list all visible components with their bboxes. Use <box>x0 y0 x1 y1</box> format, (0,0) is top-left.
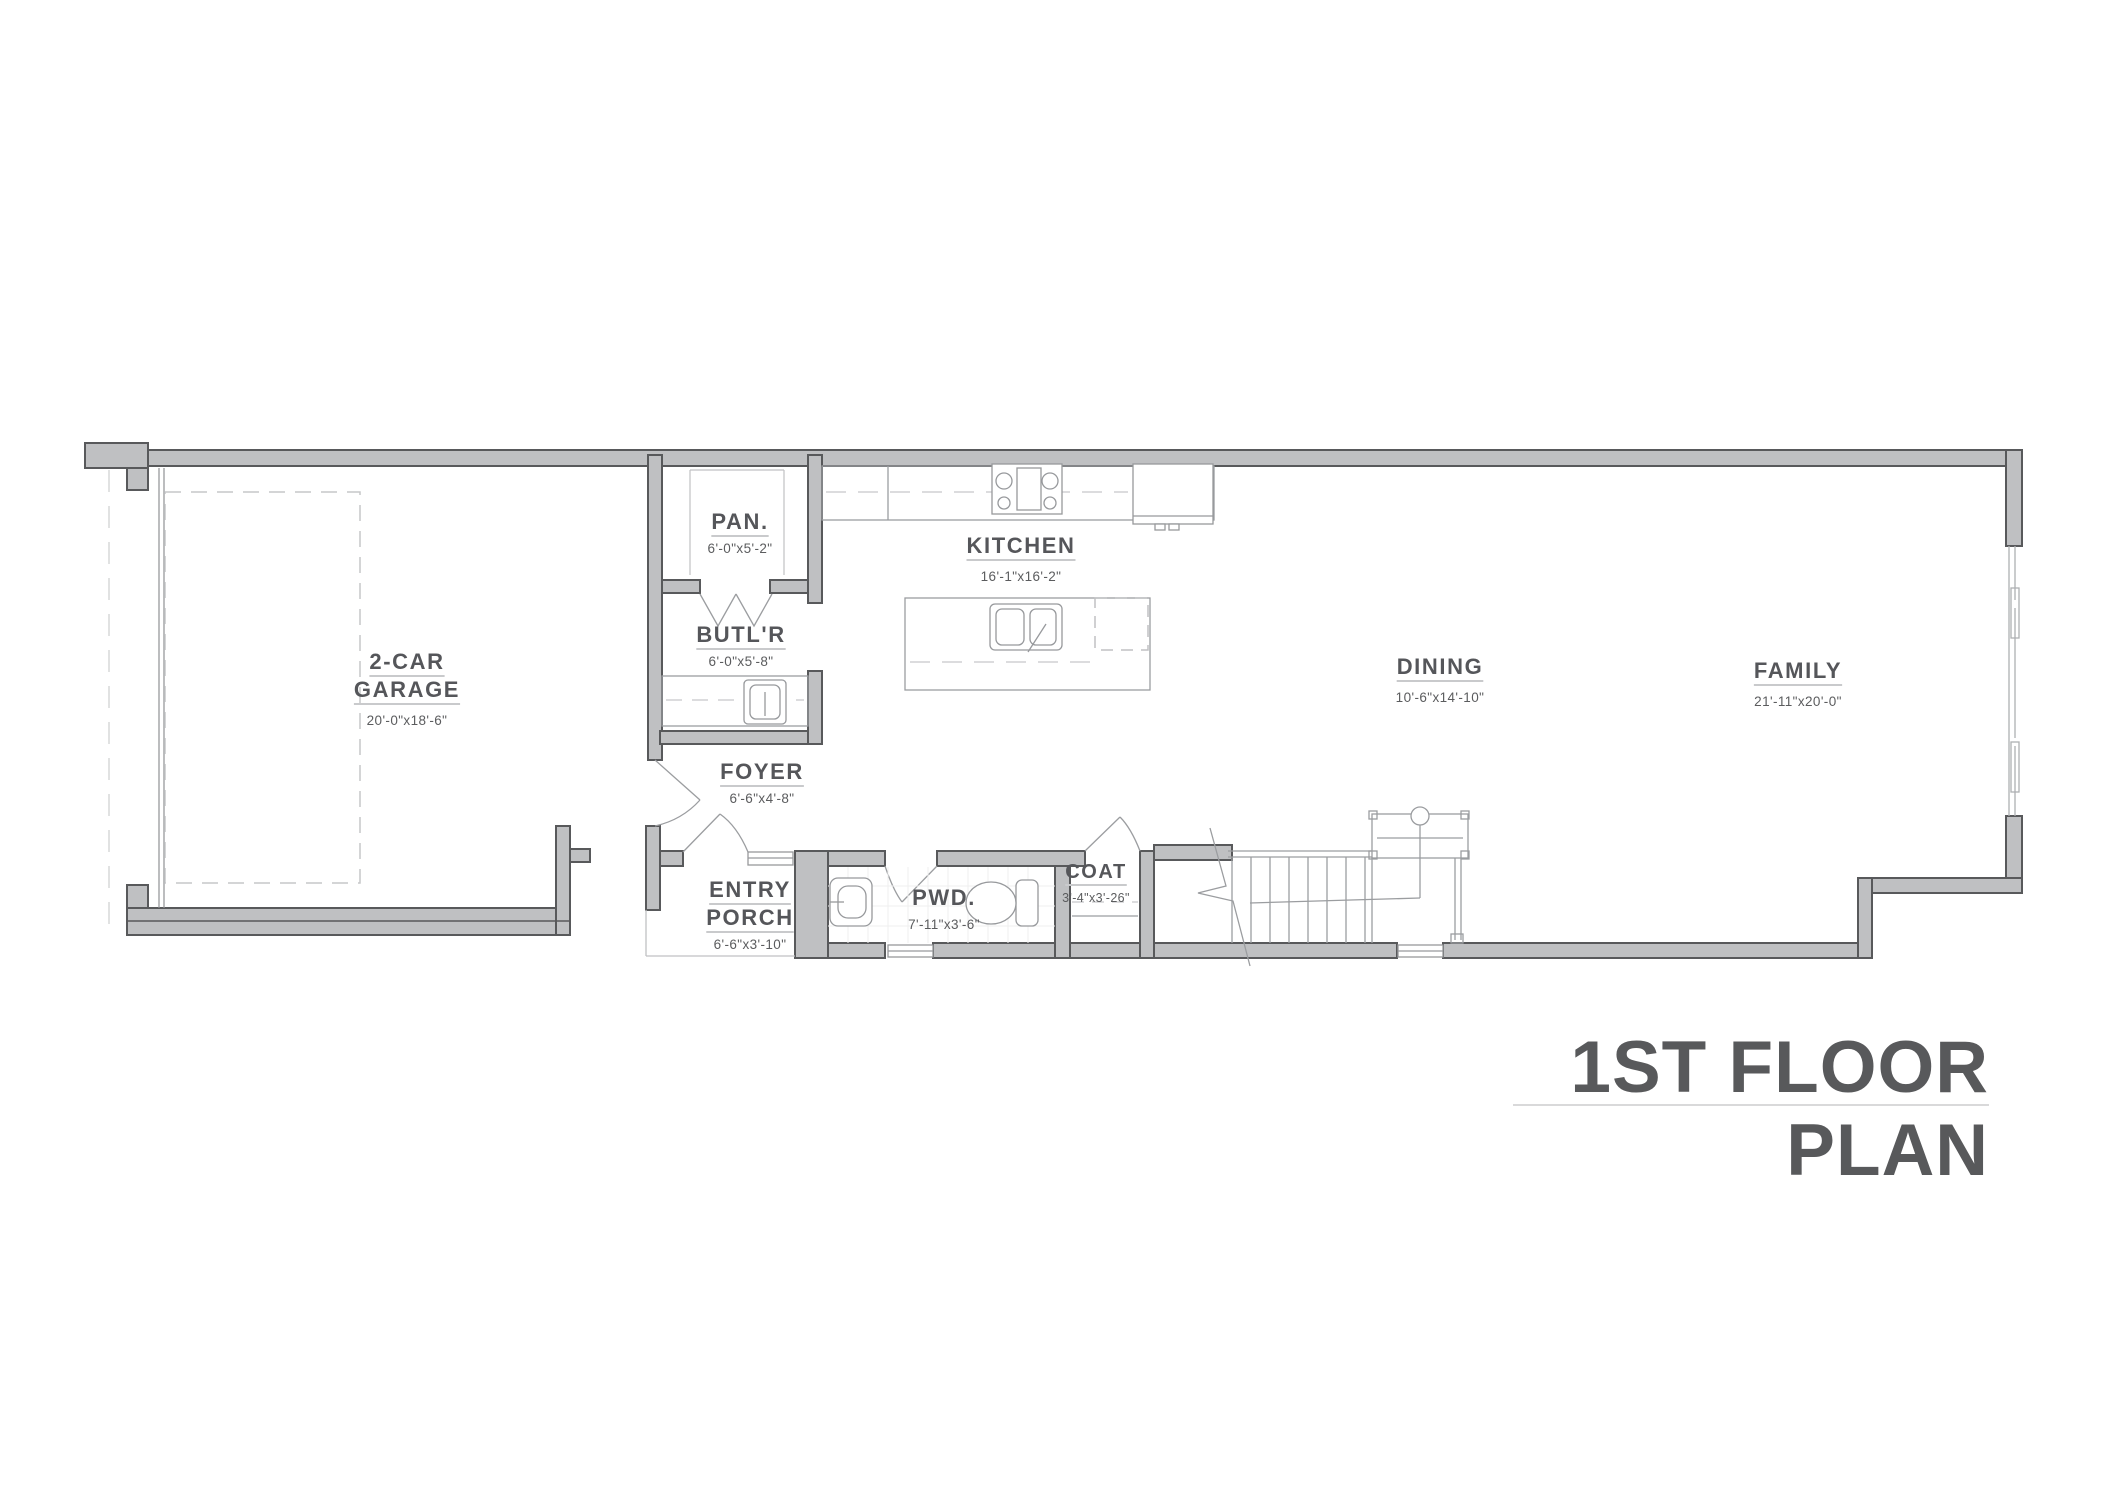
room-label-entry-porch: ENTRY PORCH 6'-6"x3'-10" <box>690 876 810 952</box>
room-dimensions: 16'-1"x16'-2" <box>911 569 1131 584</box>
plan-title-underline <box>1513 1104 1989 1106</box>
floor-plan-page: 2-CAR GARAGE 20'-0"x18'-6" PAN. 6'-0"x5'… <box>0 0 2109 1490</box>
room-name: COAT <box>1036 860 1156 886</box>
room-dimensions: 6'-6"x3'-10" <box>690 937 810 952</box>
room-label-garage: 2-CAR GARAGE 20'-0"x18'-6" <box>332 648 482 728</box>
room-name: KITCHEN <box>911 532 1131 560</box>
room-name: ENTRY PORCH <box>690 876 810 932</box>
room-label-powder: PWD. 7'-11"x3'-6" <box>864 884 1024 932</box>
stair-railing <box>1369 807 1469 943</box>
room-dimensions: 20'-0"x18'-6" <box>332 713 482 728</box>
garage-parking-outline <box>165 492 360 883</box>
room-name: DINING <box>1330 653 1550 681</box>
room-name: PWD. <box>864 884 1024 912</box>
room-label-foyer: FOYER 6'-6"x4'-8" <box>682 758 842 806</box>
room-dimensions: 3'-4"x3'-26" <box>1036 891 1156 905</box>
room-dimensions: 21'-11"x20'-0" <box>1688 694 1908 709</box>
stairs <box>1228 851 1420 943</box>
butler-sink <box>744 680 786 724</box>
room-name: PAN. <box>670 508 810 536</box>
room-label-butler: BUTL'R 6'-0"x5'-8" <box>661 621 821 669</box>
garage-left-wall <box>159 468 164 908</box>
room-dimensions: 7'-11"x3'-6" <box>864 917 1024 932</box>
refrigerator <box>1133 464 1213 530</box>
room-label-family: FAMILY 21'-11"x20'-0" <box>1688 657 1908 709</box>
room-name: 2-CAR GARAGE <box>332 648 482 704</box>
range-cooktop <box>992 464 1062 514</box>
room-name: BUTL'R <box>661 621 821 649</box>
floor-plan-drawing <box>0 0 2109 1490</box>
dishwasher <box>1095 598 1148 650</box>
room-label-dining: DINING 10'-6"x14'-10" <box>1330 653 1550 705</box>
room-dimensions: 10'-6"x14'-10" <box>1330 690 1550 705</box>
room-label-kitchen: KITCHEN 16'-1"x16'-2" <box>911 532 1131 584</box>
island-sink <box>990 604 1062 652</box>
room-dimensions: 6'-6"x4'-8" <box>682 791 842 806</box>
room-name: FOYER <box>682 758 842 786</box>
room-dimensions: 6'-0"x5'-2" <box>670 541 810 556</box>
family-window-wall <box>2009 546 2019 816</box>
room-label-coat: COAT 3'-4"x3'-26" <box>1036 860 1156 905</box>
room-name: FAMILY <box>1688 657 1908 685</box>
room-dimensions: 6'-0"x5'-8" <box>661 654 821 669</box>
room-label-pantry: PAN. 6'-0"x5'-2" <box>670 508 810 556</box>
plan-title: 1ST FLOOR PLAN <box>1513 1026 1989 1192</box>
